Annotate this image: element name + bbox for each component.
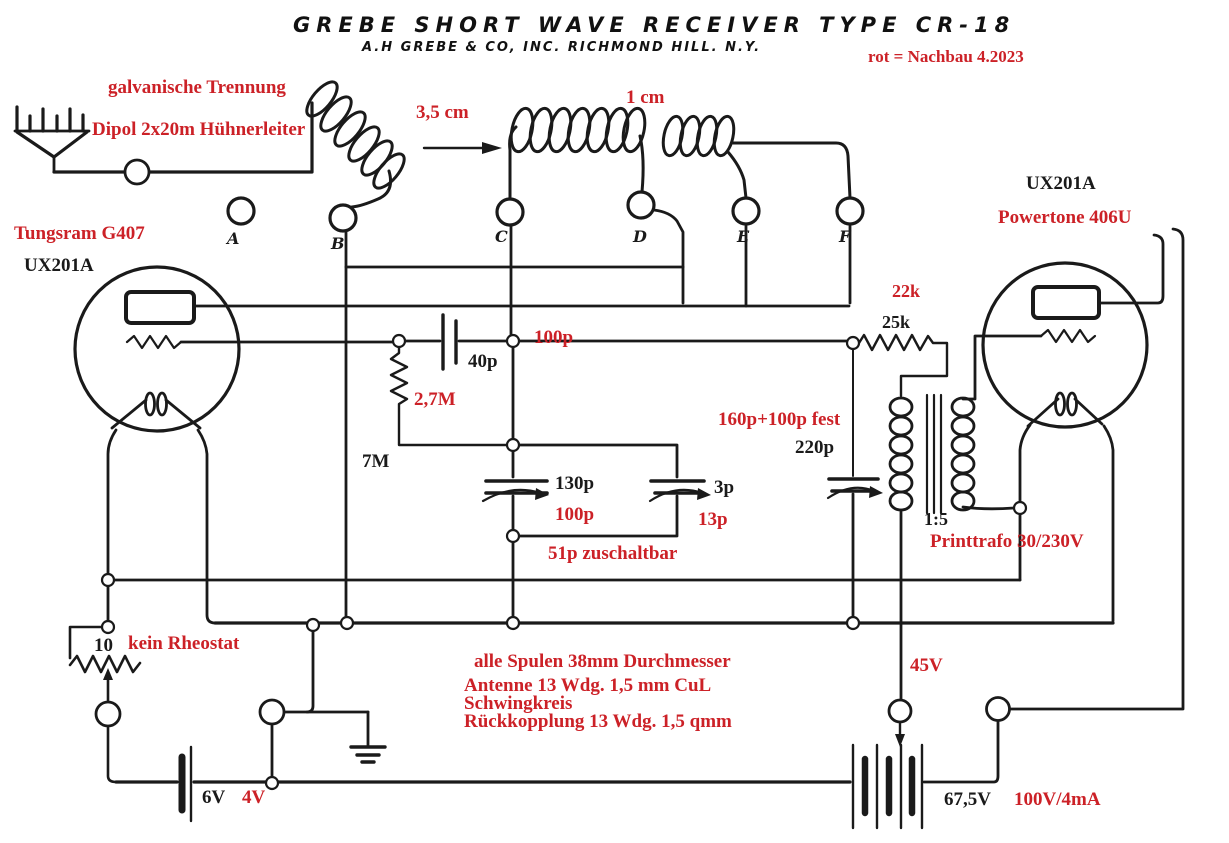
tuning-coil (508, 106, 649, 199)
rheostat-value: 10 (94, 636, 113, 656)
right-tube-name: Powertone 406U (998, 208, 1132, 228)
antenna-note-2: Dipol 2x20m Hühnerleiter (92, 120, 305, 140)
grid-cap-replica-value: 100p (534, 328, 573, 348)
output-wire (1010, 229, 1183, 709)
filament-battery-label: 6V (202, 788, 225, 808)
ground-jack (260, 700, 284, 724)
bypass-cap-value: 220p (795, 438, 834, 458)
terminal-label-a: A (227, 231, 239, 248)
plate-battery-label: 67,5V (944, 790, 991, 810)
coil-spacing-label: 3,5 cm (416, 103, 469, 123)
grid-leak-replica-value: 2,7M (414, 390, 456, 410)
tap-100v-jack (987, 698, 1010, 721)
transformer (890, 395, 974, 513)
trim-cap-value: 3p (714, 478, 734, 498)
filament-jack (96, 702, 120, 726)
rheostat-replica-note: kein Rheostat (128, 634, 239, 654)
transformer-ratio: 1:5 (924, 510, 948, 529)
page-subtitle: A.H GREBE & CO, INC. RICHMOND HILL. N.Y. (362, 41, 761, 55)
switchable-cap-note: 51p zuschaltbar (548, 544, 677, 564)
coil-note-1: alle Spulen 38mm Durchmesser (474, 652, 731, 672)
terminal-label-e: E (737, 229, 749, 246)
trim-cap-replica-value: 13p (698, 510, 728, 530)
coupling-res-value: 25k (882, 313, 910, 332)
terminal-label-d: D (633, 229, 647, 246)
right-tube (983, 263, 1147, 427)
antenna-icon (15, 107, 89, 172)
coil-note-4: Rückkopplung 13 Wdg. 1,5 qmm (464, 712, 732, 732)
right-tube-type: UX201A (1026, 174, 1096, 194)
right-tube-plate (1033, 287, 1099, 318)
spacing-arrow-icon (424, 142, 502, 154)
tap-45v-jack (889, 700, 911, 722)
left-tube-type: UX201A (24, 256, 94, 276)
terminal-label-b: B (331, 236, 345, 253)
trimmer-capacitor (519, 445, 711, 536)
schematic-page: GREBE SHORT WAVE RECEIVER TYPE CR-18 A.H… (0, 0, 1229, 843)
tap-45v-label: 45V (910, 656, 943, 676)
left-tube-grid (127, 336, 181, 348)
coupling-coil (302, 77, 410, 207)
coil-gap-label: 1 cm (626, 88, 665, 108)
page-title: GREBE SHORT WAVE RECEIVER TYPE CR-18 (293, 14, 1015, 36)
tickler-coil (660, 115, 850, 198)
tuning-capacitor (483, 347, 549, 617)
coupling-resistor (859, 335, 947, 396)
left-tube-plate (126, 292, 194, 323)
filament-battery (182, 747, 191, 821)
left-tube (75, 267, 239, 431)
plate-battery (853, 745, 922, 828)
terminal-label-f: F (839, 229, 850, 246)
grid-leak-value: 7M (362, 452, 389, 472)
tuning-cap-value: 130p (555, 474, 594, 494)
grid-cap-value: 40p (468, 352, 498, 372)
terminal-label-c: C (495, 229, 508, 246)
ground-icon (351, 712, 385, 762)
right-tube-grid (1041, 330, 1095, 342)
antenna-note-1: galvanische Trennung (108, 78, 286, 98)
antenna-jack (125, 160, 149, 184)
plate-battery-replica-label: 100V/4mA (1014, 790, 1101, 810)
left-tube-name: Tungsram G407 (14, 224, 145, 244)
transformer-core (927, 395, 941, 513)
filament-battery-replica-label: 4V (242, 788, 265, 808)
tuning-cap-replica-value: 100p (555, 505, 594, 525)
replica-note: rot = Nachbau 4.2023 (868, 48, 1024, 66)
tap-arrow-icon (895, 723, 905, 747)
coupling-res-replica-value: 22k (892, 282, 920, 301)
bypass-capacitor (828, 349, 883, 617)
bypass-cap-replica-value: 160p+100p fest (718, 410, 840, 430)
transformer-replica-note: Printtrafo 30/230V (930, 532, 1084, 552)
terminal-posts (228, 192, 863, 231)
